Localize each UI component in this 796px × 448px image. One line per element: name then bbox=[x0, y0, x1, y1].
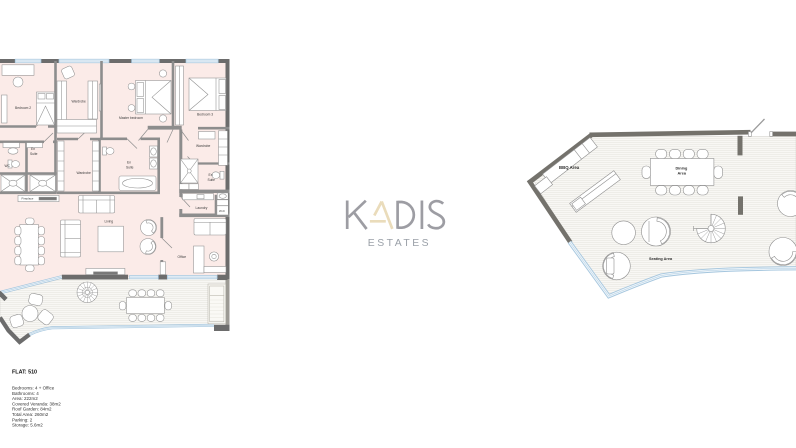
svg-text:Wardrobe: Wardrobe bbox=[196, 144, 211, 148]
svg-text:En: En bbox=[31, 147, 35, 151]
svg-text:BBQ Area: BBQ Area bbox=[559, 165, 580, 170]
svg-text:Parking: 2: Parking: 2 bbox=[12, 417, 33, 422]
svg-text:Suite: Suite bbox=[30, 152, 38, 156]
svg-text:Bedroom 2: Bedroom 2 bbox=[15, 106, 31, 110]
svg-text:Storage: 5.6m2: Storage: 5.6m2 bbox=[12, 423, 43, 428]
svg-text:FLAT: 510: FLAT: 510 bbox=[12, 370, 37, 376]
svg-text:En: En bbox=[209, 173, 213, 177]
svg-text:Laundry: Laundry bbox=[196, 206, 208, 210]
svg-text:WC: WC bbox=[5, 164, 11, 168]
svg-text:Covered Veranda: 38m2: Covered Veranda: 38m2 bbox=[12, 401, 61, 406]
svg-text:Master bedroom: Master bedroom bbox=[119, 116, 143, 120]
svg-text:Area: 222m2: Area: 222m2 bbox=[12, 396, 38, 401]
svg-text:Roof Garden: 84m2: Roof Garden: 84m2 bbox=[12, 407, 52, 412]
svg-text:W-D: W-D bbox=[219, 209, 225, 213]
svg-text:Total Area: 260m2: Total Area: 260m2 bbox=[12, 412, 49, 417]
svg-text:Bedroom 3: Bedroom 3 bbox=[197, 113, 213, 117]
svg-text:Living: Living bbox=[105, 220, 114, 224]
svg-text:Bathrooms: 4: Bathrooms: 4 bbox=[12, 391, 39, 396]
svg-text:Wardrobe: Wardrobe bbox=[77, 171, 92, 175]
svg-text:Suite: Suite bbox=[208, 178, 216, 182]
svg-text:ESTATES: ESTATES bbox=[368, 238, 431, 249]
svg-text:Fireplace: Fireplace bbox=[22, 197, 34, 201]
svg-text:En: En bbox=[127, 161, 131, 165]
svg-text:Bedrooms: 4 + Office: Bedrooms: 4 + Office bbox=[12, 386, 55, 391]
svg-text:Seating Area: Seating Area bbox=[649, 257, 673, 261]
svg-text:Area: Area bbox=[678, 172, 687, 176]
svg-text:Dining: Dining bbox=[676, 167, 688, 171]
svg-text:Suite: Suite bbox=[126, 166, 134, 170]
svg-text:Office: Office bbox=[178, 255, 187, 259]
svg-text:Wardrobe: Wardrobe bbox=[72, 100, 87, 104]
